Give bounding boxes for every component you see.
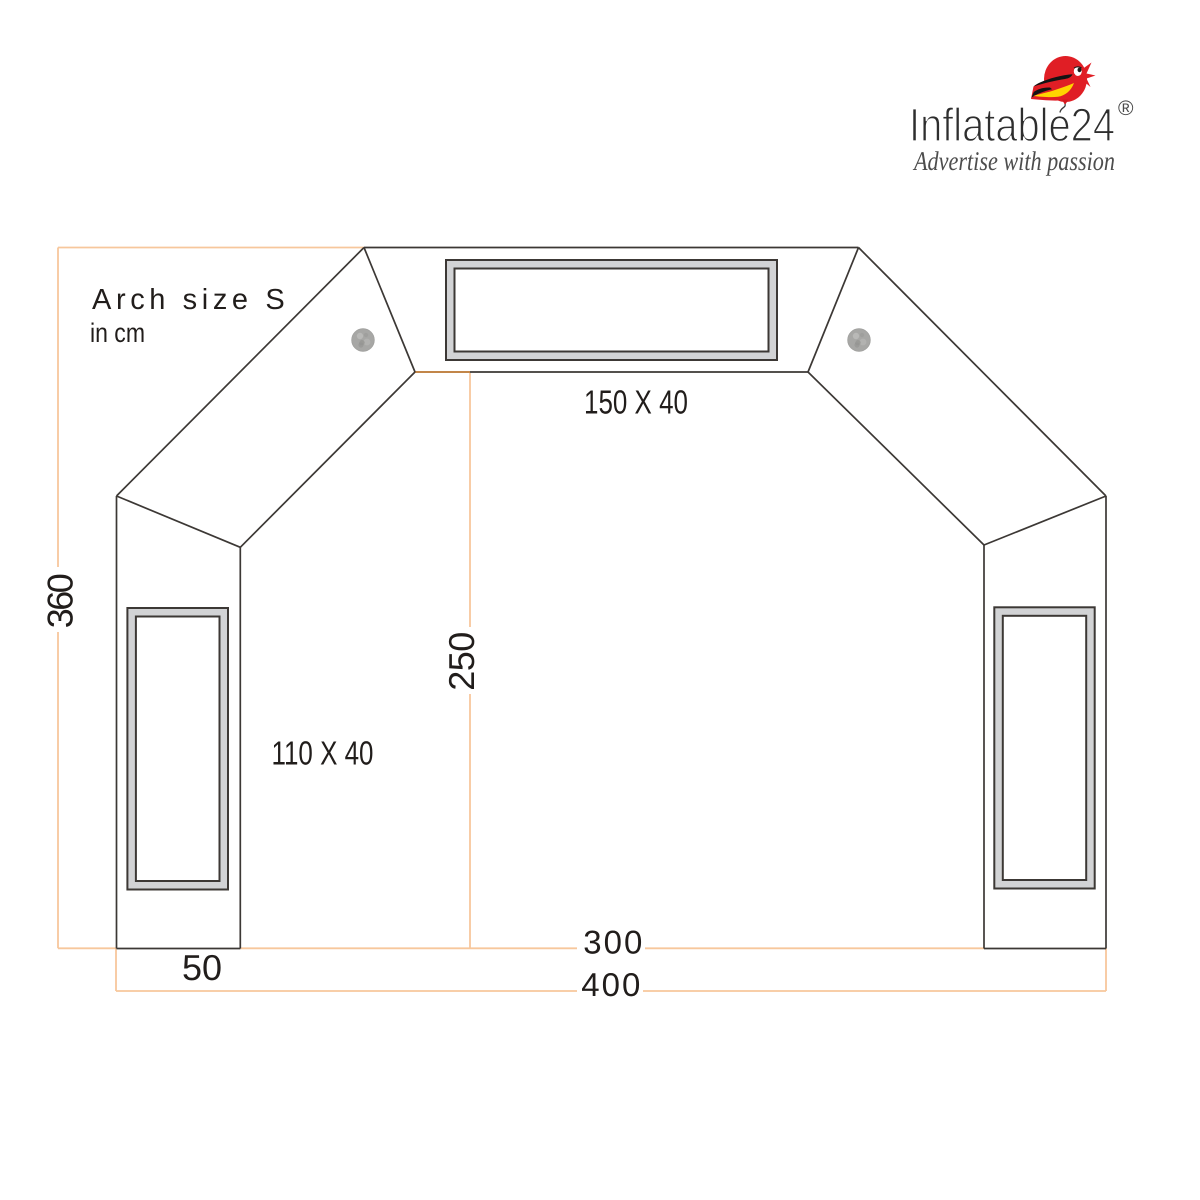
svg-text:250: 250 xyxy=(441,632,482,691)
svg-text:50: 50 xyxy=(182,947,222,988)
svg-text:Inflatable24: Inflatable24 xyxy=(909,98,1115,151)
svg-text:300: 300 xyxy=(583,924,644,961)
svg-text:Advertise with passion: Advertise with passion xyxy=(912,146,1115,176)
svg-text:®: ® xyxy=(1118,97,1134,120)
svg-text:110 X 40: 110 X 40 xyxy=(271,736,373,773)
svg-text:150 X 40: 150 X 40 xyxy=(584,385,688,422)
svg-text:in cm: in cm xyxy=(90,318,145,348)
svg-text:360: 360 xyxy=(40,574,81,628)
svg-text:Arch size S: Arch size S xyxy=(92,284,289,316)
svg-text:400: 400 xyxy=(581,966,642,1003)
